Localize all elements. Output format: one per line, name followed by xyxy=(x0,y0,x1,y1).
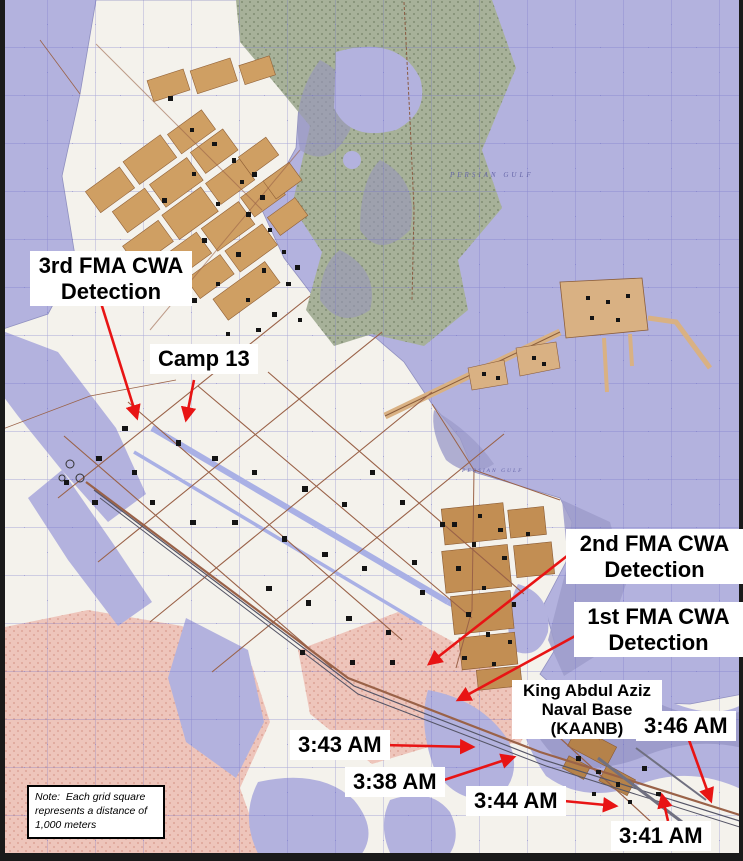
note-line: represents a distance of xyxy=(35,805,157,819)
note-line: 1,000 meters xyxy=(35,819,157,833)
persian-gulf-label-north: PERSIAN GULF xyxy=(449,171,534,179)
label-time-341: 3:41 AM xyxy=(611,821,711,851)
label-time-343: 3:43 AM xyxy=(290,730,390,760)
label-time-344: 3:44 AM xyxy=(466,786,566,816)
label-time-338: 3:38 AM xyxy=(345,767,445,797)
label-line: 2nd FMA CWA xyxy=(566,531,743,557)
label-line: 3rd FMA CWA xyxy=(30,253,192,279)
label-line: Camp 13 xyxy=(158,346,250,372)
label-line: 3:46 AM xyxy=(644,713,728,739)
label-line: 3:38 AM xyxy=(353,769,437,795)
map-image: PERSIAN GULF PERSIAN GULF 3rd xyxy=(0,0,743,861)
persian-gulf-label-south: PERSIAN GULF xyxy=(461,468,523,474)
label-line: King Abdul Aziz xyxy=(512,681,662,700)
label-line: Detection xyxy=(30,279,192,305)
label-3rd-fma-detection: 3rd FMA CWA Detection xyxy=(30,251,192,306)
label-line: 1st FMA CWA xyxy=(574,604,743,630)
label-line: 3:41 AM xyxy=(619,823,703,849)
label-camp-13: Camp 13 xyxy=(150,344,258,374)
label-line: Detection xyxy=(566,557,743,583)
label-line: Detection xyxy=(574,630,743,656)
label-1st-fma-detection: 1st FMA CWA Detection xyxy=(574,602,743,657)
label-time-346: 3:46 AM xyxy=(636,711,736,741)
label-line: 3:44 AM xyxy=(474,788,558,814)
grid-scale-note: Note: Each grid square represents a dist… xyxy=(27,785,165,839)
label-line: 3:43 AM xyxy=(298,732,382,758)
note-line: Note: Each grid square xyxy=(35,791,157,805)
label-2nd-fma-detection: 2nd FMA CWA Detection xyxy=(566,529,743,584)
